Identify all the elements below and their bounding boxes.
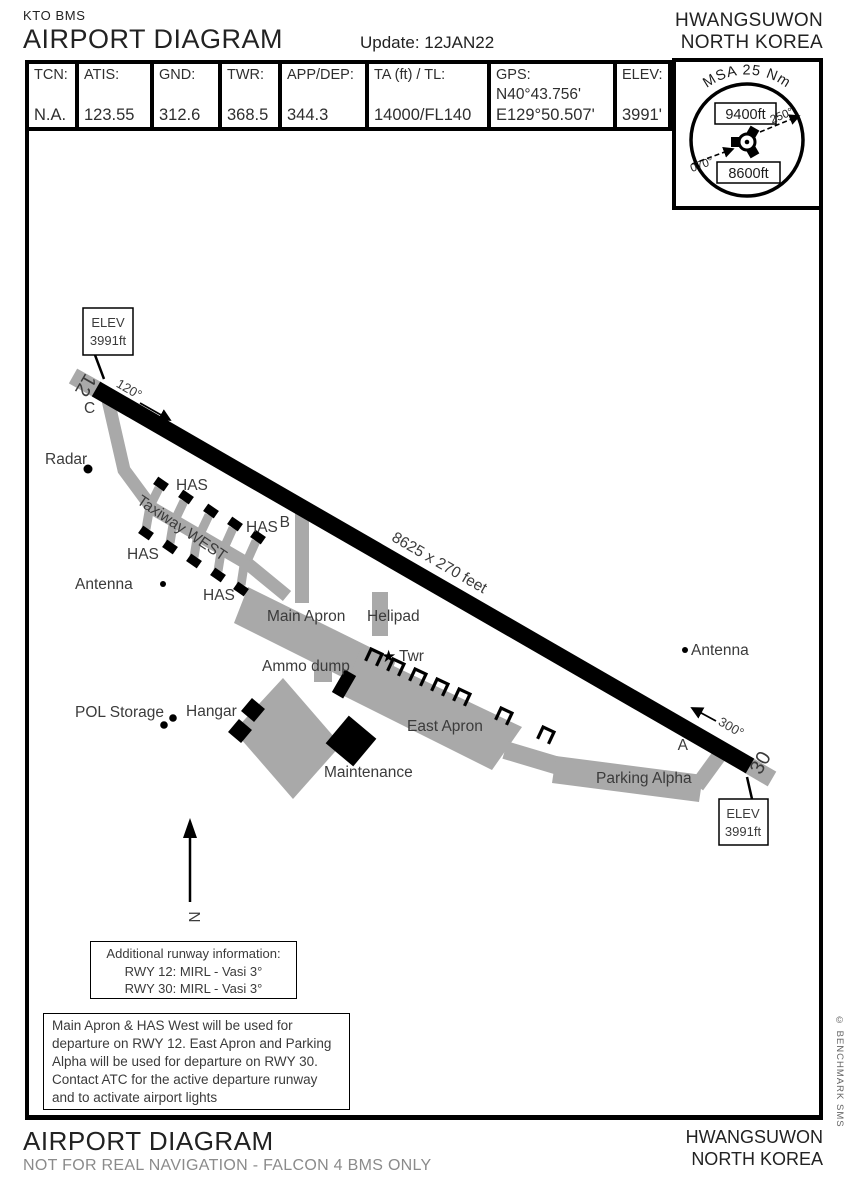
antenna-east-label: Antenna [691,642,749,659]
parking-alpha-label: Parking Alpha [596,770,692,787]
airport-map: ELEV 3991ft ELEV 3991ft N Radar Antenna … [0,0,850,1181]
elev-nw-value: 3991ft [90,333,127,348]
north-label: N [185,911,202,922]
airport-symbol-icon [731,126,759,159]
has-label-sw: HAS [127,546,159,563]
maintenance-label: Maintenance [324,764,413,781]
has-label-e: HAS [246,519,278,536]
has-label-s: HAS [203,587,235,604]
tower-star-icon: ★ [381,647,396,666]
main-apron-label: Main Apron [267,608,345,625]
taxiway-c-label: C [84,400,95,417]
east-apron-label: East Apron [407,718,483,735]
msa-upper-altitude: 9400ft [725,107,765,123]
taxiway-b-path [295,508,309,603]
antenna-east-dot [682,647,688,653]
heading-300-label: 300° [716,714,747,740]
taxiway-b-label: B [280,514,290,531]
east-apron-area [342,650,572,770]
antenna-west-dot [160,581,166,587]
msa-diagram: MSA 25 Nm 9400ft 8600ft 070° 250° [689,63,803,196]
elev-se-value: 3991ft [725,824,762,839]
elev-nw-label: ELEV [91,315,125,330]
helipad-label: Helipad [367,608,420,625]
msa-lower-altitude: 8600ft [728,166,768,182]
taxiway-a-label: A [678,737,689,754]
north-arrow: N [183,818,202,923]
tower-label: Twr [399,648,424,665]
antenna-west-label: Antenna [75,576,133,593]
has-label-ne: HAS [176,477,208,494]
elev-box-se: ELEV 3991ft [719,777,768,845]
svg-text:MSA 25 Nm: MSA 25 Nm [700,63,793,92]
ammo-dump-label: Ammo dump [262,658,350,675]
elev-box-nw: ELEV 3991ft [83,308,133,379]
hangar-label: Hangar [186,703,237,720]
elev-se-label: ELEV [726,806,760,821]
msa-title: MSA 25 Nm [700,63,793,92]
pol-storage-label: POL Storage [75,704,164,721]
radar-label: Radar [45,451,87,468]
maintenance-building [326,716,377,767]
heading-300-arrow [692,708,716,721]
